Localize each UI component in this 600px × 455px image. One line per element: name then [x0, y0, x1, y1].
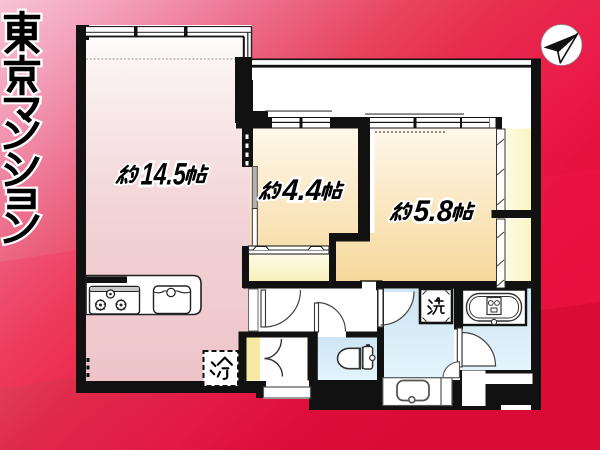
svg-text:14.5: 14.5 — [140, 157, 188, 192]
svg-text:4.4: 4.4 — [281, 174, 324, 207]
svg-text:5.8: 5.8 — [412, 195, 454, 228]
